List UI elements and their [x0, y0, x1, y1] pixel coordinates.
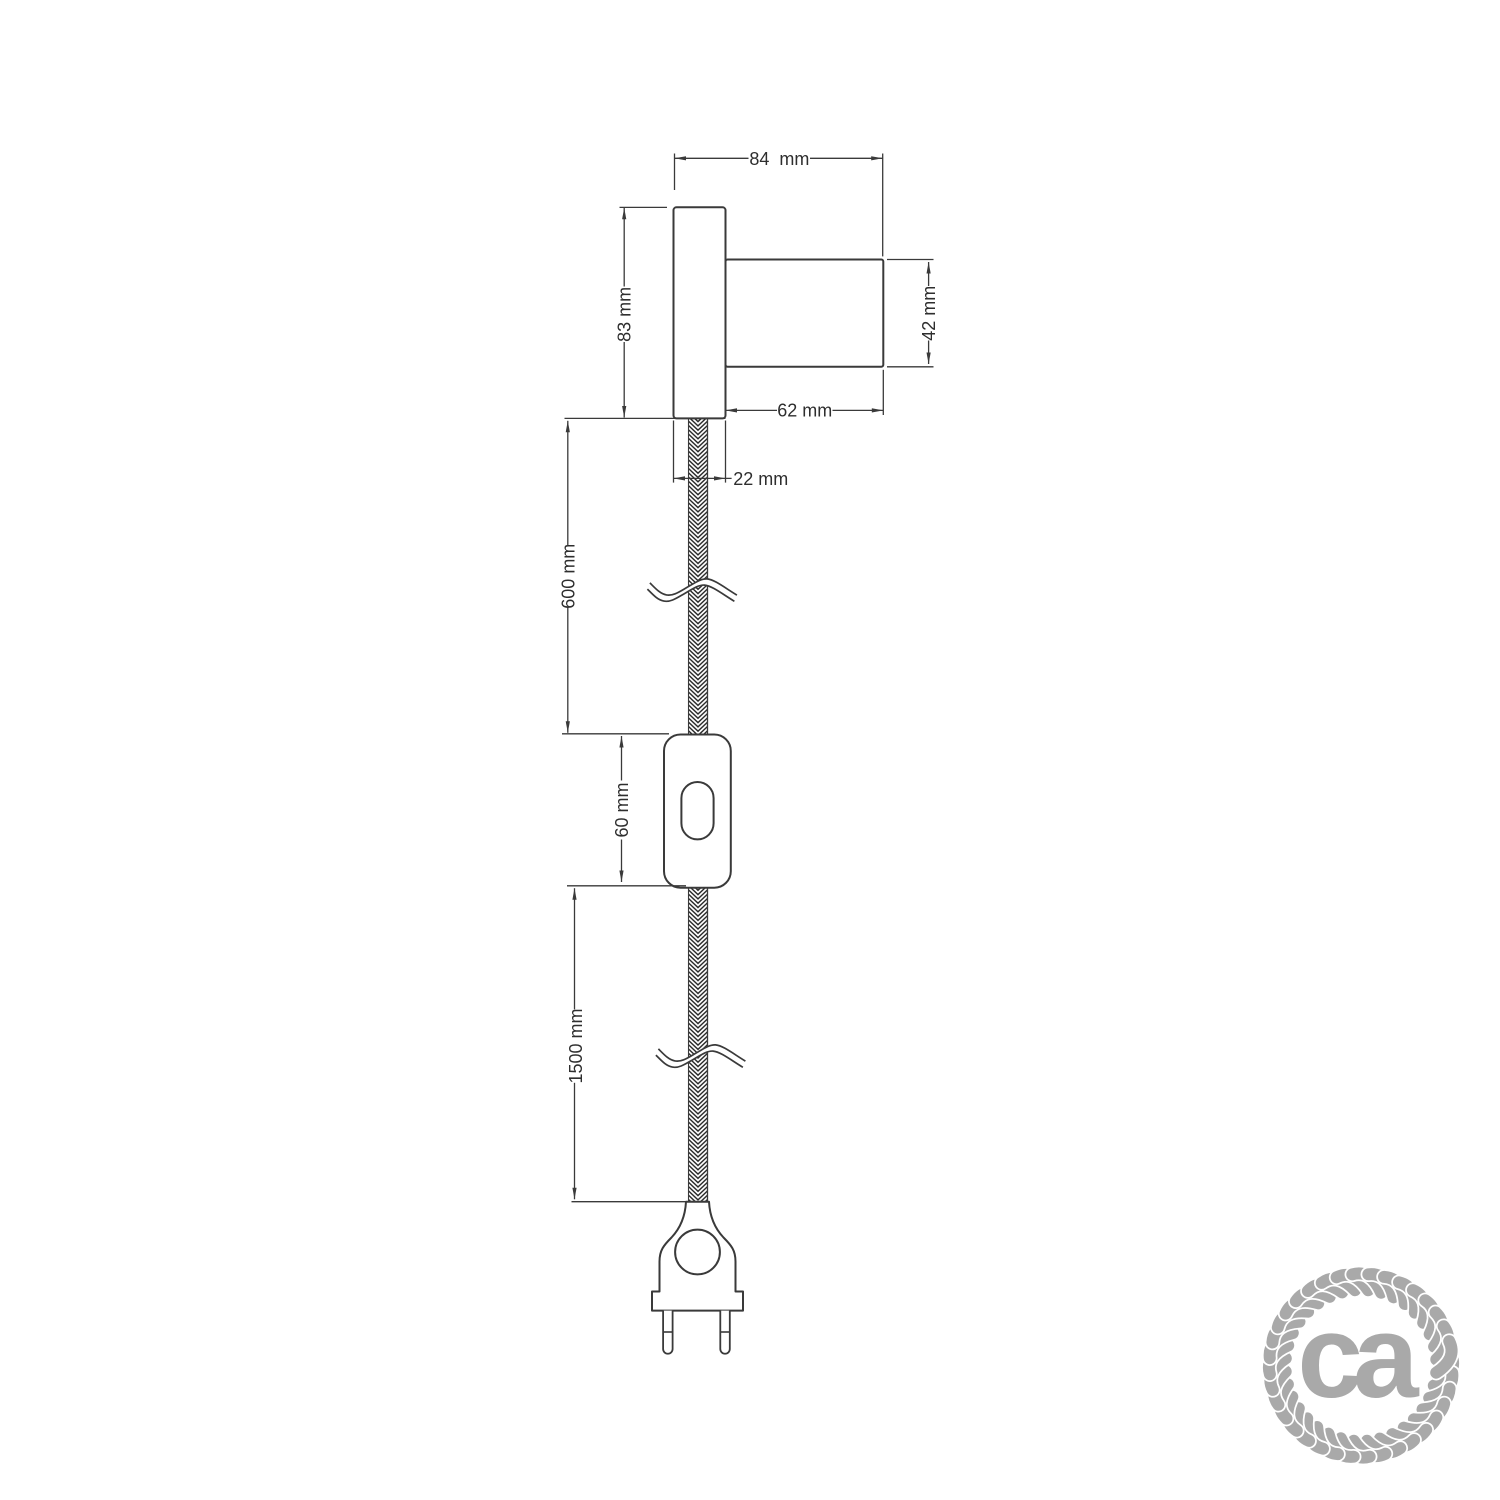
svg-text:60 mm: 60 mm: [612, 782, 632, 837]
svg-text:83 mm: 83 mm: [615, 287, 635, 342]
svg-text:600 mm: 600 mm: [559, 544, 579, 609]
svg-text:22 mm: 22 mm: [733, 469, 788, 489]
svg-text:84 mm: 84 mm: [749, 149, 809, 169]
svg-text:1500 mm: 1500 mm: [566, 1008, 586, 1083]
svg-text:62 mm: 62 mm: [777, 400, 832, 420]
svg-text:ca: ca: [1297, 1291, 1420, 1423]
svg-text:42 mm: 42 mm: [919, 286, 939, 341]
